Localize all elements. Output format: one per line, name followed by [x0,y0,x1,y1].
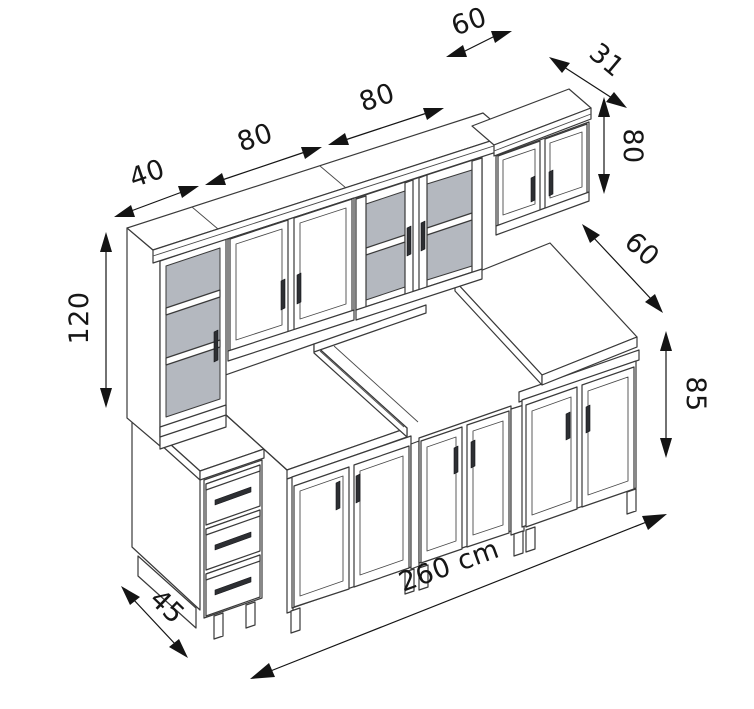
door-handle [454,446,458,474]
arrowhead [491,31,512,43]
arrowhead [205,173,226,185]
door-handle [566,412,570,440]
arrowhead [301,147,322,159]
arrowhead [178,186,199,198]
dim-label-80: 80 [233,118,277,159]
door-handle [531,176,535,202]
kitchen-dimension-diagram: 40 80 80 60 31 [0,0,754,709]
door-handle [336,481,340,510]
arrowhead [645,294,663,313]
cabinet-stile [411,441,419,569]
dim-label-80: 80 [355,78,399,119]
drawer-unit [204,460,262,618]
arrowhead [642,514,667,530]
dim-label-60d: 60 [618,226,665,273]
dim-label-80h: 80 [617,128,648,163]
arrowhead [598,174,610,194]
tall-cabinet-glass [166,248,220,417]
door-handle [471,440,475,468]
door-handle [549,170,553,196]
arrowhead [114,205,135,217]
door-handle [281,279,285,310]
arrowhead [100,388,112,408]
dim-label-31: 31 [583,37,630,83]
arrowhead [446,45,467,57]
arrowhead [250,663,275,679]
arrowhead [328,133,349,145]
door-handle [214,330,218,362]
dim-label-120: 120 [64,291,95,344]
tall-display-cabinet [127,228,226,449]
arrowhead [549,57,570,73]
dimension-80-height: 80 [598,97,648,194]
arrowhead [606,92,627,108]
door-handle [421,221,425,251]
dimension-40: 40 [114,154,199,217]
dim-label-40: 40 [125,154,169,195]
dim-label-85: 85 [680,376,711,411]
dimension-120-height: 120 [64,232,112,408]
door-handle [356,474,360,503]
wall-cabinet-60 [472,89,591,235]
arrowhead [423,108,444,120]
arrowhead [121,586,140,605]
arrowhead [100,232,112,252]
diagram-canvas: 40 80 80 60 31 [0,0,754,709]
door-handle [407,226,411,256]
base-cabinet-doors-middle [419,406,511,563]
dim-label-60: 60 [447,2,491,43]
dimension-60-wall: 60 [446,2,512,57]
dimension-85-height: 85 [660,331,711,458]
arrowhead [660,438,672,458]
arrowhead [582,224,600,243]
door-handle [297,273,301,304]
arrowhead [660,331,672,351]
door-handle [586,405,590,433]
arrowhead [169,639,188,658]
